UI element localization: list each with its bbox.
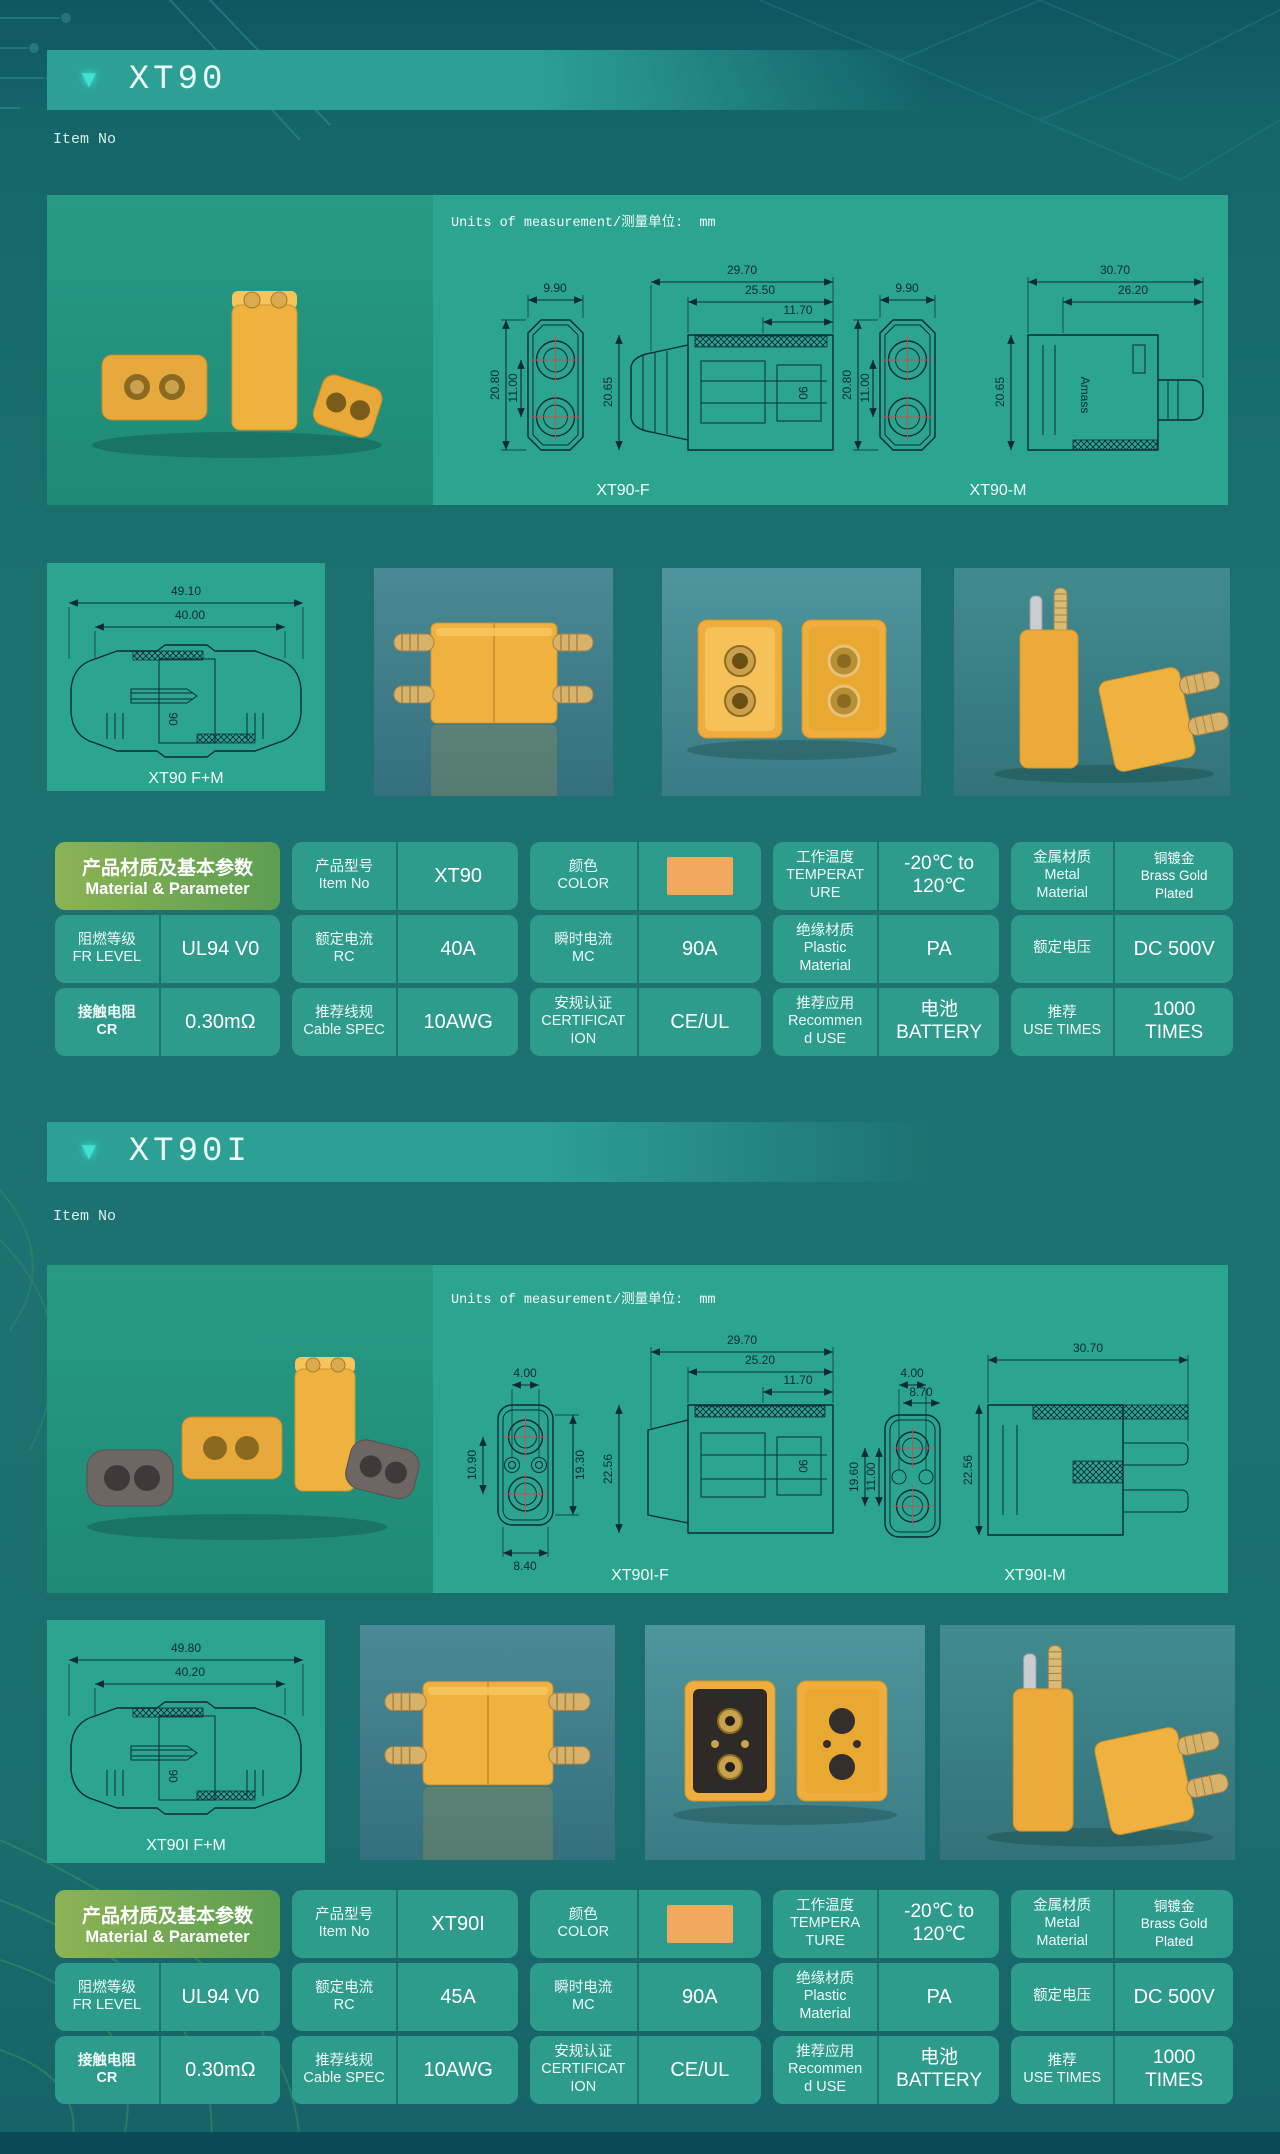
- svg-text:4.00: 4.00: [900, 1366, 924, 1380]
- svg-text:20.80: 20.80: [488, 370, 502, 400]
- xt90i-drawing-area: Units of measurement/测量单位: mm 4.00 10.90: [433, 1265, 1228, 1593]
- spec-label: 额定电流RC: [292, 915, 398, 983]
- xt90-drawing-area: Units of measurement/测量单位: mm 9.90 20.80: [433, 195, 1228, 505]
- section-title: XT90I: [129, 1133, 251, 1171]
- xt90i-product-photo: [47, 1265, 433, 1593]
- spec-label: 额定电压: [1011, 915, 1115, 983]
- spec-cell: 推荐USE TIMES1000TIMES: [1011, 2036, 1233, 2104]
- spec-value: 1000TIMES: [1115, 2036, 1233, 2104]
- section-header-xt90i: ▼ XT90I: [47, 1122, 932, 1182]
- xt90i-photo-mated-pair: [360, 1625, 615, 1860]
- spec-label: 安规认证CERTIFICATION: [530, 988, 639, 1056]
- spec-cell: 推荐USE TIMES1000TIMES: [1011, 988, 1233, 1056]
- spec-label: 绝缘材质PlasticMaterial: [773, 915, 879, 983]
- spec-value: 电池BATTERY: [879, 2036, 999, 2104]
- xt90-dimension-drawings: 9.90 20.80 11.00 90: [433, 195, 1228, 505]
- xt90i-f-label: XT90I-F: [611, 1567, 669, 1584]
- spec-label: 瞬时电流MC: [530, 1963, 639, 2031]
- xt90-photo-angled-pair: [954, 568, 1230, 796]
- spec-cell: 阻燃等级FR LEVELUL94 V0: [55, 1963, 280, 2031]
- spec-cell: 额定电流RC40A: [292, 915, 518, 983]
- svg-text:90: 90: [796, 386, 810, 400]
- spec-cell: 安规认证CERTIFICATIONCE/UL: [530, 988, 761, 1056]
- spec-label: 接触电阻CR: [55, 988, 161, 1056]
- table-header-line: 产品材质及基本参数: [82, 853, 253, 880]
- svg-text:49.80: 49.80: [171, 1641, 201, 1655]
- svg-text:8.70: 8.70: [909, 1385, 933, 1399]
- spec-label: 额定电压: [1011, 1963, 1115, 2031]
- spec-value: PA: [879, 915, 999, 983]
- table-header-cell: 产品材质及基本参数Material & Parameter: [55, 1890, 280, 1958]
- spec-value: PA: [879, 1963, 999, 2031]
- xt90-m-label: XT90-M: [970, 482, 1027, 499]
- section-title: XT90: [129, 61, 227, 99]
- item-no-label: Item No: [53, 131, 116, 148]
- svg-text:20.80: 20.80: [840, 370, 854, 400]
- svg-text:40.20: 40.20: [175, 1665, 205, 1679]
- spec-cell: 阻燃等级FR LEVELUL94 V0: [55, 915, 280, 983]
- xt90i-f-front-art: [498, 1405, 553, 1525]
- spec-table-row: 阻燃等级FR LEVELUL94 V0额定电流RC45A瞬时电流MC90A绝缘材…: [55, 1963, 1233, 2031]
- xt90i-fm-label: XT90I F+M: [146, 1837, 226, 1854]
- spec-cell: 金属材质MetalMaterial铜镀金Brass GoldPlated: [1011, 1890, 1233, 1958]
- spec-value: -20℃ to120℃: [879, 842, 999, 910]
- spec-table-row: 产品材质及基本参数Material & Parameter产品型号Item No…: [55, 1890, 1233, 1958]
- spec-label: 推荐线规Cable SPEC: [292, 2036, 398, 2104]
- spec-label: 工作温度TEMPERATURE: [773, 1890, 879, 1958]
- spec-label: 推荐USE TIMES: [1011, 2036, 1115, 2104]
- spec-value: 0.30mΩ: [161, 988, 280, 1056]
- spec-table-row: 产品材质及基本参数Material & Parameter产品型号Item No…: [55, 842, 1233, 910]
- spec-value: 电池BATTERY: [879, 988, 999, 1056]
- spec-cell: 瞬时电流MC90A: [530, 915, 761, 983]
- spec-value: [639, 1890, 761, 1958]
- xt90-m-side-art: Amass: [1028, 335, 1203, 450]
- item-no-label: Item No: [53, 1208, 116, 1225]
- spec-cell: 推荐线规Cable SPEC10AWG: [292, 988, 518, 1056]
- spec-label: 额定电流RC: [292, 1963, 398, 2031]
- svg-text:22.56: 22.56: [961, 1455, 975, 1485]
- spec-cell: 金属材质MetalMaterial铜镀金Brass GoldPlated: [1011, 842, 1233, 910]
- svg-text:11.70: 11.70: [783, 303, 812, 317]
- svg-text:25.20: 25.20: [745, 1353, 775, 1367]
- spec-cell: 颜色COLOR: [530, 1890, 761, 1958]
- xt90i-overview-panel: Units of measurement/测量单位: mm 4.00 10.90: [47, 1265, 1228, 1593]
- spec-value: DC 500V: [1115, 1963, 1233, 2031]
- spec-value: 90A: [639, 1963, 761, 2031]
- triangle-marker-icon: ▼: [77, 68, 101, 92]
- xt90i-f-side-art: 90: [648, 1405, 833, 1533]
- spec-value: -20℃ to120℃: [879, 1890, 999, 1958]
- section-header-xt90: ▼ XT90: [47, 50, 932, 110]
- spec-cell: 接触电阻CR0.30mΩ: [55, 2036, 280, 2104]
- spec-label: 推荐线规Cable SPEC: [292, 988, 398, 1056]
- xt90-photo-mated-pair: [374, 568, 613, 796]
- svg-text:9.90: 9.90: [895, 281, 919, 295]
- spec-value: CE/UL: [639, 2036, 761, 2104]
- svg-text:11.00: 11.00: [506, 373, 520, 402]
- spec-label: 金属材质MetalMaterial: [1011, 842, 1115, 910]
- svg-text:90: 90: [166, 712, 180, 726]
- spec-value: 45A: [398, 1963, 518, 2031]
- spec-label: 金属材质MetalMaterial: [1011, 1890, 1115, 1958]
- table-header-cell: 产品材质及基本参数Material & Parameter: [55, 842, 280, 910]
- spec-label: 颜色COLOR: [530, 1890, 639, 1958]
- spec-value: XT90: [398, 842, 518, 910]
- svg-text:25.50: 25.50: [745, 283, 775, 297]
- spec-value: 10AWG: [398, 988, 518, 1056]
- spec-label: 接触电阻CR: [55, 2036, 161, 2104]
- xt90i-dimension-drawings: 4.00 10.90 19.30 8.40 90: [433, 1265, 1228, 1593]
- spec-cell: 安规认证CERTIFICATIONCE/UL: [530, 2036, 761, 2104]
- spec-label: 推荐应用Recommend USE: [773, 2036, 879, 2104]
- spec-value: 铜镀金Brass GoldPlated: [1115, 842, 1233, 910]
- xt90i-m-label: XT90I-M: [1004, 1567, 1065, 1584]
- spec-label: 工作温度TEMPERATURE: [773, 842, 879, 910]
- spec-label: 推荐USE TIMES: [1011, 988, 1115, 1056]
- spec-value: UL94 V0: [161, 915, 280, 983]
- spec-value: 0.30mΩ: [161, 2036, 280, 2104]
- spec-label: 阻燃等级FR LEVEL: [55, 1963, 161, 2031]
- table-header-line: Material & Parameter: [85, 880, 249, 899]
- spec-cell: 额定电压DC 500V: [1011, 1963, 1233, 2031]
- svg-text:10.90: 10.90: [465, 1450, 479, 1480]
- spec-table-row: 阻燃等级FR LEVELUL94 V0额定电流RC40A瞬时电流MC90A绝缘材…: [55, 915, 1233, 983]
- spec-cell: 绝缘材质PlasticMaterialPA: [773, 915, 999, 983]
- xt90-overview-panel: Units of measurement/测量单位: mm 9.90 20.80: [47, 195, 1228, 505]
- svg-text:29.70: 29.70: [727, 263, 757, 277]
- svg-text:8.40: 8.40: [513, 1559, 537, 1573]
- svg-text:49.10: 49.10: [171, 584, 201, 598]
- xt90-f-label: XT90-F: [596, 482, 650, 499]
- standing-male-connector: [232, 291, 297, 430]
- xt90-fm-label: XT90 F+M: [148, 770, 223, 787]
- spec-label: 绝缘材质PlasticMaterial: [773, 1963, 879, 2031]
- xt90i-photo-angled-pair: [940, 1625, 1235, 1860]
- spec-label: 产品型号Item No: [292, 1890, 398, 1958]
- spec-value: UL94 V0: [161, 1963, 280, 2031]
- svg-text:11.00: 11.00: [858, 373, 872, 402]
- xt90i-photo-front-views: [645, 1625, 925, 1860]
- spec-label: 阻燃等级FR LEVEL: [55, 915, 161, 983]
- svg-text:26.20: 26.20: [1118, 283, 1148, 297]
- xt90-product-photo: [47, 195, 433, 505]
- svg-text:4.00: 4.00: [513, 1366, 537, 1380]
- grey-cap-right: [342, 1437, 422, 1502]
- units-label: Units of measurement/测量单位: mm: [451, 1287, 716, 1308]
- svg-text:90: 90: [796, 1459, 810, 1473]
- spec-cell: 工作温度TEMPERATURE-20℃ to120℃: [773, 842, 999, 910]
- table-header-line: 产品材质及基本参数: [82, 1901, 253, 1928]
- svg-text:30.70: 30.70: [1100, 263, 1130, 277]
- spec-value: 1000TIMES: [1115, 988, 1233, 1056]
- svg-text:11.70: 11.70: [783, 1373, 812, 1387]
- spec-table-row: 接触电阻CR0.30mΩ推荐线规Cable SPEC10AWG安规认证CERTI…: [55, 2036, 1233, 2104]
- spec-cell: 工作温度TEMPERATURE-20℃ to120℃: [773, 1890, 999, 1958]
- spec-cell: 产品型号Item NoXT90: [292, 842, 518, 910]
- spec-value: [639, 842, 761, 910]
- color-swatch: [667, 857, 733, 895]
- xt90i-spec-table: 产品材质及基本参数Material & Parameter产品型号Item No…: [55, 1890, 1233, 2109]
- table-header-line: Material & Parameter: [85, 1928, 249, 1947]
- lying-female-connector: [102, 355, 207, 420]
- svg-text:9.90: 9.90: [543, 281, 567, 295]
- svg-text:22.56: 22.56: [601, 1454, 615, 1484]
- svg-text:11.00: 11.00: [864, 1462, 878, 1491]
- spec-label: 推荐应用Recommend USE: [773, 988, 879, 1056]
- color-swatch: [667, 1905, 733, 1943]
- spec-cell: 颜色COLOR: [530, 842, 761, 910]
- spec-value: 铜镀金Brass GoldPlated: [1115, 1890, 1233, 1958]
- spec-cell: 推荐应用Recommend USE电池BATTERY: [773, 988, 999, 1056]
- spec-cell: 接触电阻CR0.30mΩ: [55, 988, 280, 1056]
- svg-text:Amass: Amass: [1078, 377, 1092, 414]
- grey-cap-left: [87, 1450, 173, 1506]
- spec-cell: 额定电压DC 500V: [1011, 915, 1233, 983]
- spec-table-row: 接触电阻CR0.30mΩ推荐线规Cable SPEC10AWG安规认证CERTI…: [55, 988, 1233, 1056]
- xt90-f-side-art: 90: [631, 335, 833, 450]
- svg-text:20.65: 20.65: [993, 377, 1007, 407]
- svg-text:19.30: 19.30: [573, 1450, 587, 1480]
- spec-cell: 产品型号Item NoXT90I: [292, 1890, 518, 1958]
- spec-cell: 额定电流RC45A: [292, 1963, 518, 2031]
- spec-cell: 瞬时电流MC90A: [530, 1963, 761, 2031]
- spec-label: 瞬时电流MC: [530, 915, 639, 983]
- angled-connector-cap: [310, 372, 385, 441]
- spec-cell: 推荐应用Recommend USE电池BATTERY: [773, 2036, 999, 2104]
- xt90i-m-front-art: [885, 1415, 940, 1537]
- spec-label: 安规认证CERTIFICATION: [530, 2036, 639, 2104]
- spec-value: CE/UL: [639, 988, 761, 1056]
- lying-female-connector: [182, 1417, 282, 1479]
- spec-value: XT90I: [398, 1890, 518, 1958]
- svg-text:20.65: 20.65: [601, 377, 615, 407]
- xt90-photo-front-views: [662, 568, 921, 796]
- xt90-spec-table: 产品材质及基本参数Material & Parameter产品型号Item No…: [55, 842, 1233, 1061]
- spec-value: DC 500V: [1115, 915, 1233, 983]
- svg-text:29.70: 29.70: [727, 1333, 757, 1347]
- spec-label: 产品型号Item No: [292, 842, 398, 910]
- spec-value: 90A: [639, 915, 761, 983]
- triangle-marker-icon: ▼: [77, 1140, 101, 1164]
- xt90i-fm-drawing-panel: 49.80 40.20 XT90I F+M: [47, 1620, 325, 1863]
- spec-cell: 推荐线规Cable SPEC10AWG: [292, 2036, 518, 2104]
- spec-value: 10AWG: [398, 2036, 518, 2104]
- xt90i-m-side-art: [988, 1405, 1188, 1535]
- xt90-fm-drawing-panel: 49.10 40.00 90 XT90 F+M: [47, 563, 325, 791]
- units-label: Units of measurement/测量单位: mm: [451, 210, 716, 231]
- product-spec-page: ▼ XT90 Item No: [0, 0, 1280, 2154]
- svg-text:30.70: 30.70: [1073, 1341, 1103, 1355]
- svg-text:19.60: 19.60: [847, 1462, 861, 1492]
- spec-label: 颜色COLOR: [530, 842, 639, 910]
- spec-value: 40A: [398, 915, 518, 983]
- svg-text:40.00: 40.00: [175, 608, 205, 622]
- spec-cell: 绝缘材质PlasticMaterialPA: [773, 1963, 999, 2031]
